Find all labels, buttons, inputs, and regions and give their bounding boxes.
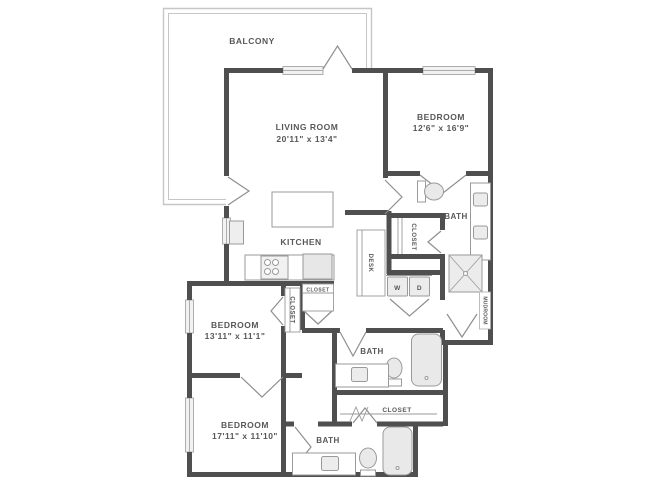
bedroom-3-label: BEDROOM (221, 420, 269, 430)
bath-1-label: BATH (444, 212, 468, 221)
burner-icon (265, 260, 271, 266)
shower-drain-icon (464, 272, 468, 276)
living-room-dims: 20'11" x 13'4" (276, 134, 337, 144)
bedroom-1-label: BEDROOM (417, 112, 465, 122)
closet-4-label: CLOSET (382, 407, 411, 414)
closet-2-label: CLOSET (306, 288, 329, 294)
door-entry (447, 314, 477, 337)
burner-icon (273, 269, 279, 275)
toilet3-bowl (360, 448, 377, 468)
desk-label: DESK (367, 254, 373, 273)
burner-icon (273, 260, 279, 266)
washer-label: W (394, 285, 401, 292)
door-laundry (390, 299, 429, 316)
dishwasher (230, 221, 244, 244)
bedroom-1-dims: 12'6" x 16'9" (413, 123, 469, 133)
sink3 (322, 457, 339, 471)
door-balcony (323, 46, 352, 69)
balcony-label: BALCONY (229, 36, 275, 46)
bedroom-2-label: BEDROOM (211, 320, 259, 330)
bath-3-label: BATH (316, 436, 340, 445)
bedroom-3-dims: 17'11" x 11'10" (212, 431, 278, 441)
kitchen-label: KITCHEN (280, 237, 321, 247)
toilet3-tank (361, 470, 376, 476)
door-closet1 (428, 231, 441, 253)
dryer-label: D (417, 285, 422, 292)
mudroom-label: MUDROOM (482, 296, 488, 324)
floor-plan: BALCONY LIVING ROOM 20'11" x 13'4" BEDRO… (0, 0, 650, 490)
kitchen-island (272, 192, 333, 227)
sink1b (474, 226, 488, 239)
door-closet2 (304, 311, 332, 324)
bath-2-label: BATH (360, 347, 384, 356)
door-closet4 (353, 408, 377, 423)
toilet1-bowl (425, 183, 444, 200)
living-room-label: LIVING ROOM (276, 122, 339, 132)
tub3-drain-icon (396, 467, 399, 470)
sink1a (474, 193, 488, 206)
door-hall (385, 180, 402, 214)
closet-3-label: CLOSET (289, 296, 295, 323)
floor-plan-svg: BALCONY LIVING ROOM 20'11" x 13'4" BEDRO… (0, 0, 650, 490)
bedroom-2-dims: 13'11" x 11'1" (205, 331, 266, 341)
door-bedroom3 (241, 377, 283, 397)
burner-icon (265, 269, 271, 275)
door-balcony-side (228, 177, 249, 205)
door-bedroom2 (271, 297, 283, 325)
refrigerator (303, 254, 332, 279)
sink2 (352, 368, 368, 382)
tub2-drain-icon (425, 377, 428, 380)
closet-1-label: CLOSET (410, 223, 416, 250)
